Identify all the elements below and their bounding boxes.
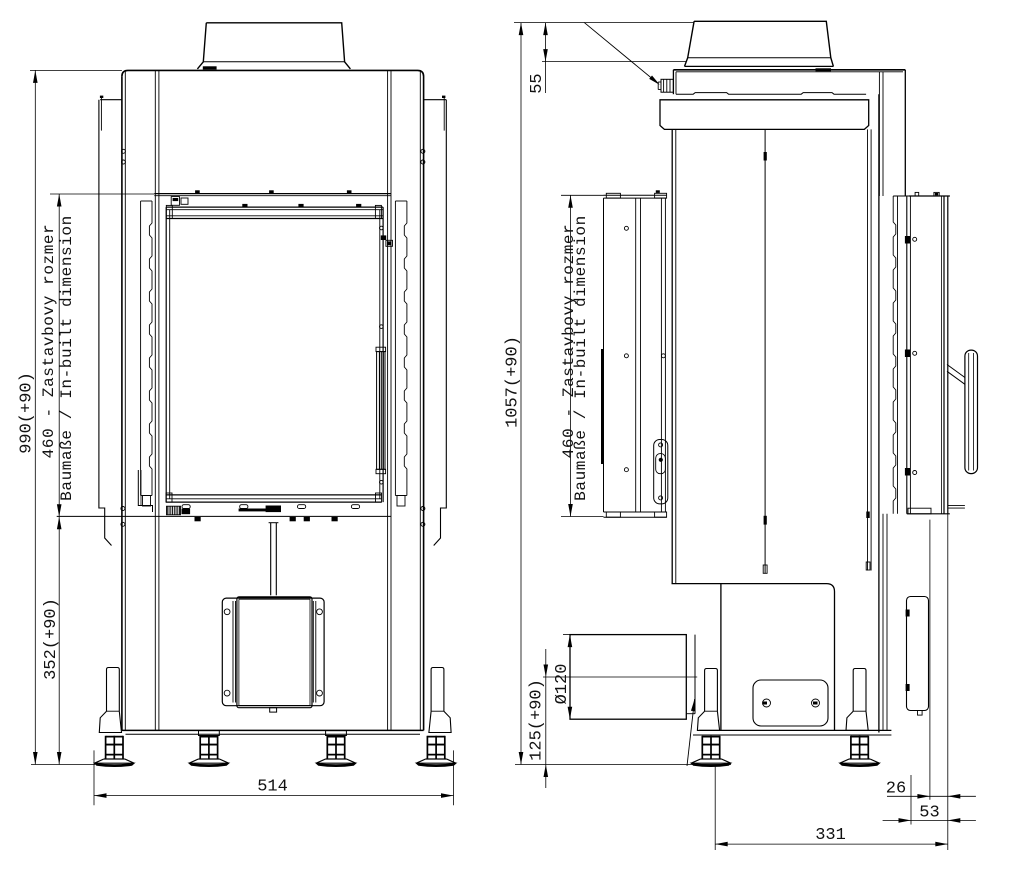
svg-text:Baumaße / In-built dimension: Baumaße / In-built dimension <box>572 215 590 501</box>
svg-text:55: 55 <box>528 73 547 93</box>
svg-text:Ø120: Ø120 <box>553 664 572 705</box>
svg-text:352(+90): 352(+90) <box>42 598 61 680</box>
svg-text:460 - Zastavbovy rozmer: 460 - Zastavbovy rozmer <box>40 224 58 459</box>
svg-text:125(+90): 125(+90) <box>528 679 547 761</box>
svg-text:26: 26 <box>886 779 906 798</box>
svg-text:990(+90): 990(+90) <box>18 372 37 454</box>
svg-text:Baumaße / In-built dimension: Baumaße / In-built dimension <box>58 215 76 501</box>
svg-text:53: 53 <box>919 804 939 823</box>
svg-text:1057(+90): 1057(+90) <box>503 336 522 428</box>
svg-text:331: 331 <box>815 826 846 845</box>
svg-text:514: 514 <box>257 778 288 797</box>
